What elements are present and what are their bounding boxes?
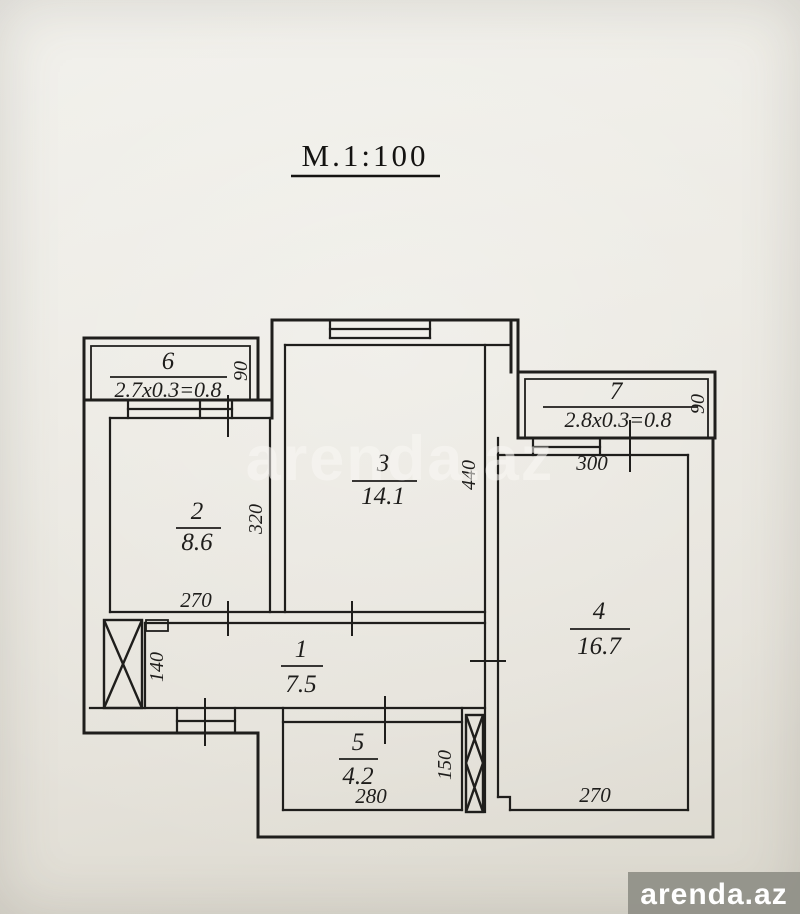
- room-2-height-dim: 320: [245, 504, 267, 535]
- logo-text: arenda.az: [640, 878, 787, 911]
- room-7-area: 2.8x0.3=0.8: [564, 407, 671, 432]
- balcony-6-depth-dim: 90: [230, 361, 252, 381]
- room-1-number: 1: [295, 636, 308, 663]
- logo-badge: arenda.az: [628, 872, 800, 914]
- corridor-height-dim: 140: [146, 652, 168, 682]
- room-4-area: 16.7: [577, 633, 622, 660]
- room-2-area: 8.6: [181, 529, 213, 556]
- room-2-width-dim: 270: [180, 588, 212, 612]
- room-5-number: 5: [352, 729, 365, 756]
- room-5-height-dim: 150: [434, 750, 456, 780]
- floor-plan-photo: М.1:100: [0, 0, 800, 914]
- room-4-bottom-width-dim: 270: [579, 783, 611, 807]
- room-7-number: 7: [610, 378, 624, 405]
- watermark-text: arenda.az: [246, 424, 555, 494]
- room-6-number: 6: [162, 348, 175, 375]
- balcony-7-depth-dim: 90: [687, 394, 709, 414]
- room-2-number: 2: [191, 498, 204, 525]
- room-4-number: 4: [593, 598, 606, 625]
- room-1-area: 7.5: [285, 671, 316, 698]
- room-6-area: 2.7x0.3=0.8: [114, 377, 221, 402]
- scale-title: М.1:100: [302, 138, 429, 173]
- room-4-top-width-dim: 300: [575, 451, 608, 475]
- room-5-width-dim: 280: [355, 784, 387, 808]
- shaft-column-right: [466, 715, 483, 812]
- floor-plan-drawing: М.1:100: [0, 0, 800, 914]
